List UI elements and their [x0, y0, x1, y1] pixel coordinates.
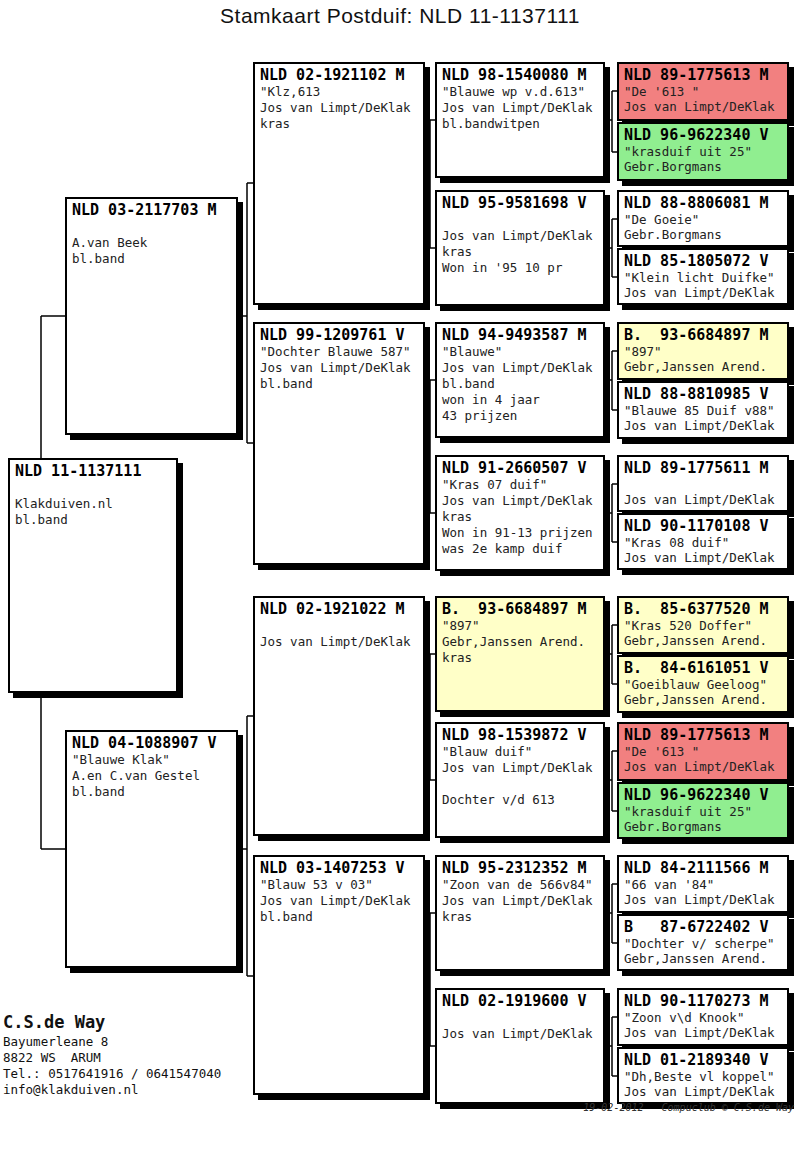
- ring-number: NLD 02-1921102 M: [260, 66, 418, 84]
- ring-number: NLD 89-1775611 M: [624, 459, 782, 477]
- bird-details: "Kras 520 Doffer" Gebr,Janssen Arend.: [624, 618, 782, 648]
- pedigree-box-g5-04: NLD 85-1805072 V "Klein licht Duifke" Jo…: [617, 248, 789, 305]
- page-title: Stamkaart Postduif: NLD 11-1137111: [0, 4, 800, 28]
- bird-details: "Dh,Beste vl koppel" Jos van Limpt/DeKla…: [624, 1069, 782, 1099]
- breeder-address-line1: Bayumerleane 8: [3, 1034, 221, 1050]
- bird-details: "897" Gebr,Janssen Arend.: [624, 344, 782, 374]
- ring-number: NLD 89-1775613 M: [624, 726, 782, 744]
- ring-number: NLD 03-1407253 V: [260, 859, 418, 877]
- print-credit: 19-02-2012 Compuclub © C.S.de Way: [583, 1102, 794, 1113]
- ring-number: NLD 98-1539872 V: [442, 726, 598, 744]
- bird-details: Klakduiven.nl bl.band: [15, 480, 171, 528]
- pedigree-box-g5-03: NLD 88-8806081 M "De Goeie" Gebr.Borgman…: [617, 190, 789, 247]
- bird-details: "Blauwe 85 Duif v88" Jos van Limpt/DeKla…: [624, 403, 782, 433]
- ring-number: NLD 98-1540080 M: [442, 66, 598, 84]
- pedigree-box-g4-4: NLD 91-2660507 V "Kras 07 duif" Jos van …: [435, 455, 605, 571]
- ring-number: NLD 90-1170273 M: [624, 992, 782, 1010]
- pedigree-box-g4-2: NLD 95-9581698 V Jos van Limpt/DeKlak kr…: [435, 190, 605, 306]
- ring-number: B. 85-6377520 M: [624, 600, 782, 618]
- bird-details: "Klein licht Duifke" Jos van Limpt/DeKla…: [624, 270, 782, 300]
- bird-details: "Klz,613 Jos van Limpt/DeKlak kras: [260, 84, 418, 132]
- breeder-email: info@klakduiven.nl: [3, 1082, 221, 1098]
- ring-number: NLD 95-9581698 V: [442, 194, 598, 212]
- pedigree-card: Stamkaart Postduif: NLD 11-1137111 NLD 1…: [0, 0, 800, 1149]
- pedigree-box-g5-14: B 87-6722402 V "Dochter v/ scherpe" Gebr…: [617, 914, 789, 971]
- ring-number: NLD 90-1170108 V: [624, 517, 782, 535]
- bird-details: "Blauwe wp v.d.613" Jos van Limpt/DeKlak…: [442, 84, 598, 132]
- ring-number: NLD 04-1088907 V: [72, 734, 231, 752]
- pedigree-box-g3-3: NLD 02-1921022 M Jos van Limpt/DeKlak: [253, 596, 425, 836]
- bird-details: "De Goeie" Gebr.Borgmans: [624, 212, 782, 242]
- bird-details: "krasduif uit 25" Gebr.Borgmans: [624, 144, 782, 174]
- bird-details: "Zoon v\d Knook" Jos van Limpt/DeKlak: [624, 1010, 782, 1040]
- pedigree-box-g5-11: NLD 89-1775613 M "De '613 " Jos van Limp…: [617, 722, 789, 781]
- pedigree-box-g4-1: NLD 98-1540080 M "Blauwe wp v.d.613" Jos…: [435, 62, 605, 178]
- ring-number: NLD 91-2660507 V: [442, 459, 598, 477]
- pedigree-box-g3-4: NLD 03-1407253 V "Blauw 53 v 03" Jos van…: [253, 855, 425, 1095]
- bird-details: Jos van Limpt/DeKlak kras Won in '95 10 …: [442, 212, 598, 276]
- ring-number: NLD 02-1919600 V: [442, 992, 598, 1010]
- bird-details: "Blauwe" Jos van Limpt/DeKlak bl.band wo…: [442, 344, 598, 424]
- bird-details: "krasduif uit 25" Gebr.Borgmans: [624, 804, 782, 834]
- bird-details: "Blauwe Klak" A.en C.van Gestel bl.band: [72, 752, 231, 800]
- pedigree-box-g4-6: NLD 98-1539872 V "Blauw duif" Jos van Li…: [435, 722, 605, 838]
- bird-details: "De '613 " Jos van Limpt/DeKlak: [624, 744, 782, 774]
- ring-number: B. 93-6684897 M: [624, 326, 782, 344]
- bird-details: "Blauw duif" Jos van Limpt/DeKlak Dochte…: [442, 744, 598, 808]
- pedigree-box-g4-8: NLD 02-1919600 V Jos van Limpt/DeKlak: [435, 988, 605, 1104]
- bird-details: Jos van Limpt/DeKlak: [624, 477, 782, 507]
- pedigree-box-g5-08: NLD 90-1170108 V "Kras 08 duif" Jos van …: [617, 513, 789, 570]
- pedigree-box-g5-12: NLD 96-9622340 V "krasduif uit 25" Gebr.…: [617, 782, 789, 839]
- ring-number: NLD 95-2312352 M: [442, 859, 598, 877]
- pedigree-box-g5-01: NLD 89-1775613 M "De '613 " Jos van Limp…: [617, 62, 789, 121]
- bird-details: "Blauw 53 v 03" Jos van Limpt/DeKlak bl.…: [260, 877, 418, 925]
- ring-number: NLD 96-9622340 V: [624, 786, 782, 804]
- pedigree-box-g4-3: NLD 94-9493587 M "Blauwe" Jos van Limpt/…: [435, 322, 605, 438]
- bird-details: Jos van Limpt/DeKlak: [442, 1010, 598, 1042]
- ring-number: NLD 02-1921022 M: [260, 600, 418, 618]
- ring-number: NLD 99-1209761 V: [260, 326, 418, 344]
- ring-number: B. 84-6161051 V: [624, 659, 782, 677]
- ring-number: NLD 88-8810985 V: [624, 385, 782, 403]
- bird-details: "Kras 07 duif" Jos van Limpt/DeKlak kras…: [442, 477, 598, 557]
- ring-number: NLD 96-9622340 V: [624, 126, 782, 144]
- ring-number: NLD 94-9493587 M: [442, 326, 598, 344]
- bird-details: "Zoon van de 566v84" Jos van Limpt/DeKla…: [442, 877, 598, 925]
- breeder-phone: Tel.: 0517641916 / 0641547040: [3, 1066, 221, 1082]
- bird-details: "De '613 " Jos van Limpt/DeKlak: [624, 84, 782, 114]
- pedigree-box-g5-06: NLD 88-8810985 V "Blauwe 85 Duif v88" Jo…: [617, 381, 789, 439]
- ring-number: NLD 88-8806081 M: [624, 194, 782, 212]
- pedigree-box-g3-2: NLD 99-1209761 V "Dochter Blauwe 587" Jo…: [253, 322, 425, 565]
- ring-number: NLD 89-1775613 M: [624, 66, 782, 84]
- breeder-address-line2: 8822 WS ARUM: [3, 1050, 221, 1066]
- bird-details: "Goeiblauw Geeloog" Gebr,Janssen Arend.: [624, 677, 782, 707]
- pedigree-box-g5-13: NLD 84-2111566 M "66 van '84" Jos van Li…: [617, 855, 789, 913]
- pedigree-box-sire: NLD 03-2117703 M A.van Beek bl.band: [65, 197, 238, 435]
- pedigree-box-g5-02: NLD 96-9622340 V "krasduif uit 25" Gebr.…: [617, 122, 789, 181]
- pedigree-box-g5-07: NLD 89-1775611 M Jos van Limpt/DeKlak: [617, 455, 789, 512]
- breeder-name: C.S.de Way: [3, 1010, 221, 1034]
- bird-details: "897" Gebr,Janssen Arend. kras: [442, 618, 598, 666]
- bird-details: "Dochter v/ scherpe" Gebr,Janssen Arend.: [624, 936, 782, 966]
- breeder-info: C.S.de Way Bayumerleane 8 8822 WS ARUM T…: [3, 1010, 221, 1098]
- ring-number: NLD 03-2117703 M: [72, 201, 231, 219]
- ring-number: NLD 85-1805072 V: [624, 252, 782, 270]
- bird-details: Jos van Limpt/DeKlak: [260, 618, 418, 650]
- pedigree-box-g5-10: B. 84-6161051 V "Goeiblauw Geeloog" Gebr…: [617, 655, 789, 713]
- pedigree-box-g4-7: NLD 95-2312352 M "Zoon van de 566v84" Jo…: [435, 855, 605, 971]
- pedigree-box-g5-15: NLD 90-1170273 M "Zoon v\d Knook" Jos va…: [617, 988, 789, 1046]
- pedigree-box-g5-16: NLD 01-2189340 V "Dh,Beste vl koppel" Jo…: [617, 1047, 789, 1104]
- ring-number: NLD 84-2111566 M: [624, 859, 782, 877]
- pedigree-box-g5-05: B. 93-6684897 M "897" Gebr,Janssen Arend…: [617, 322, 789, 380]
- pedigree-box-dam: NLD 04-1088907 V "Blauwe Klak" A.en C.va…: [65, 730, 238, 968]
- bird-details: "Kras 08 duif" Jos van Limpt/DeKlak: [624, 535, 782, 565]
- pedigree-box-g4-5: B. 93-6684897 M "897" Gebr,Janssen Arend…: [435, 596, 605, 712]
- ring-number: NLD 01-2189340 V: [624, 1051, 782, 1069]
- ring-number: NLD 11-1137111: [15, 462, 171, 480]
- bird-details: A.van Beek bl.band: [72, 219, 231, 267]
- pedigree-box-g3-1: NLD 02-1921102 M "Klz,613 Jos van Limpt/…: [253, 62, 425, 305]
- ring-number: B 87-6722402 V: [624, 918, 782, 936]
- pedigree-box-subject: NLD 11-1137111 Klakduiven.nl bl.band: [8, 458, 178, 693]
- ring-number: B. 93-6684897 M: [442, 600, 598, 618]
- bird-details: "Dochter Blauwe 587" Jos van Limpt/DeKla…: [260, 344, 418, 392]
- bird-details: "66 van '84" Jos van Limpt/DeKlak: [624, 877, 782, 907]
- pedigree-box-g5-09: B. 85-6377520 M "Kras 520 Doffer" Gebr,J…: [617, 596, 789, 654]
